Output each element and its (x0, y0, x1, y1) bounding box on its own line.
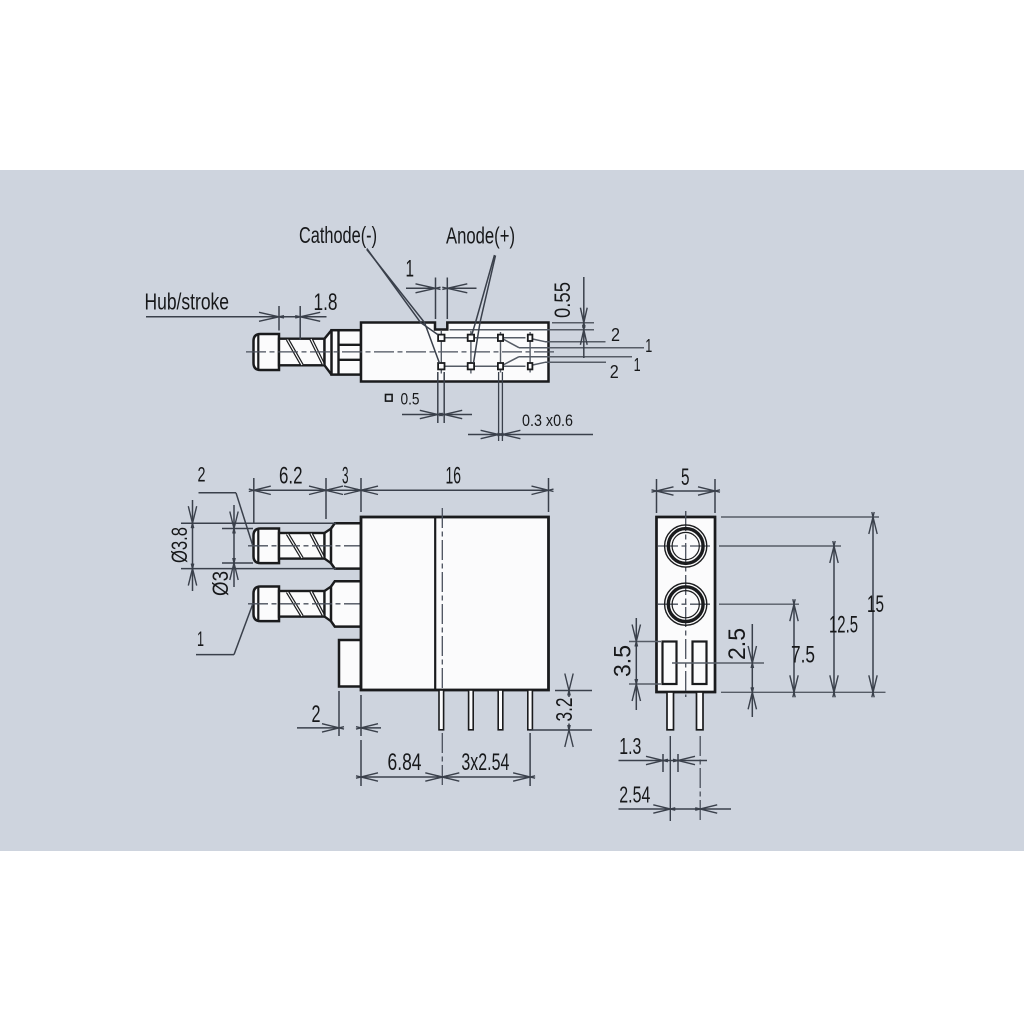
svg-text:1: 1 (406, 256, 415, 283)
svg-text:2: 2 (611, 325, 620, 345)
svg-text:0.3 x0.6: 0.3 x0.6 (522, 412, 573, 430)
svg-text:7.5: 7.5 (791, 642, 815, 669)
svg-text:5: 5 (681, 464, 690, 491)
svg-text:3.5: 3.5 (610, 645, 637, 677)
svg-text:2: 2 (610, 362, 619, 382)
svg-text:1: 1 (634, 355, 641, 375)
svg-text:15: 15 (867, 591, 884, 618)
svg-text:6.2: 6.2 (279, 463, 303, 490)
svg-text:Anode(+): Anode(+) (446, 223, 515, 249)
svg-text:0.55: 0.55 (550, 282, 575, 318)
svg-text:3: 3 (342, 463, 349, 490)
svg-text:1.8: 1.8 (314, 289, 338, 316)
svg-text:Ø3.8: Ø3.8 (167, 527, 192, 563)
svg-text:3.2: 3.2 (551, 698, 577, 722)
svg-text:Ø3: Ø3 (208, 571, 233, 596)
svg-text:1: 1 (645, 336, 652, 356)
svg-text:12.5: 12.5 (829, 612, 858, 639)
svg-text:0.5: 0.5 (401, 391, 420, 409)
svg-text:2.54: 2.54 (619, 782, 650, 808)
svg-text:3x2.54: 3x2.54 (461, 749, 509, 776)
svg-text:6.84: 6.84 (388, 749, 422, 776)
svg-text:Cathode(-): Cathode(-) (299, 222, 377, 248)
svg-text:1.3: 1.3 (619, 733, 641, 759)
svg-text:2: 2 (312, 701, 321, 728)
svg-text:1: 1 (197, 628, 204, 651)
svg-text:2.5: 2.5 (724, 628, 751, 660)
svg-text:Hub/stroke: Hub/stroke (145, 289, 230, 315)
svg-text:16: 16 (446, 463, 462, 490)
svg-text:2: 2 (198, 464, 206, 487)
